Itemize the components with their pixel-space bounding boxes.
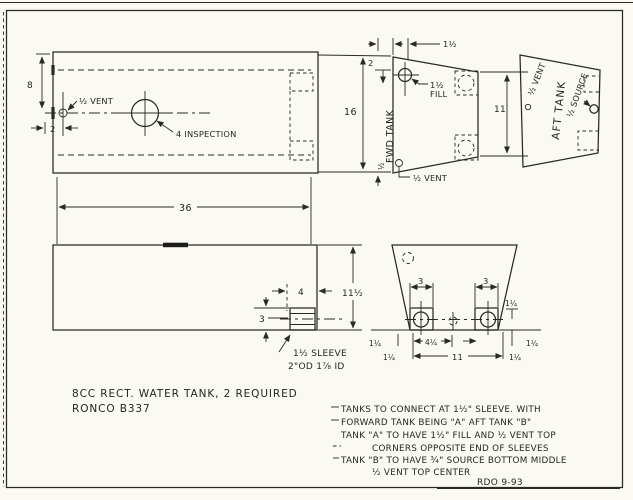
plan-vent-offset-dim: 2: [50, 124, 55, 134]
fwd-vent-label: ½ VENT: [413, 173, 448, 183]
fwd-right-height-dim: 11: [494, 105, 506, 115]
note-line-3: TANK "A" TO HAVE 1½" FILL AND ½ VENT TOP: [340, 431, 556, 441]
weld-mark: [163, 243, 188, 248]
fwd-vent-hole-symbol: [396, 160, 403, 167]
end-width-dim: 11: [452, 352, 463, 362]
drawing-sheet: 8 ½ VENT 2 4 INSPECTION 36 16 1½: [0, 0, 633, 500]
drawing-title: 8CC RECT. WATER TANK, 2 REQUIRED: [72, 388, 298, 400]
port-sleeve-dim: 3: [418, 276, 423, 286]
side-height-dim: 11½: [342, 289, 363, 299]
side-view: 4 3 11½ 1½ SLEEVE 2"OD 1⅞ ID: [53, 243, 363, 372]
aft-tank-view: ½ VENT AFT TANK ½ SOURCE: [520, 55, 600, 167]
end-view: 3 3 1¼ 1¼ 4¼ 1¼ 1¼ 11 1¼: [369, 245, 541, 362]
sleeve-callout-line1: 1½ SLEEVE: [293, 349, 347, 359]
sleeve-callout-line2: 2"OD 1⅞ ID: [288, 362, 345, 372]
plan-length-dim: 36: [179, 203, 192, 214]
corner-dim-b: 1¼: [526, 339, 539, 348]
stbd-sleeve-dim: 3: [483, 276, 488, 286]
fwd-left-height-dim: 16: [344, 107, 357, 118]
sleeve-inset-dim: 4: [298, 288, 304, 298]
sleeve-height-dim: 3: [259, 315, 265, 325]
aft-source-label: ½ SOURCE: [564, 72, 589, 119]
note-line-6: ½ VENT TOP CENTER: [372, 468, 470, 478]
circle-height-dim: 1¼: [505, 299, 518, 308]
title-block: 8CC RECT. WATER TANK, 2 REQUIRED RONCO B…: [72, 388, 298, 415]
aft-vent-label: ½ VENT: [526, 61, 548, 97]
fwd-height-dimension: 16: [318, 55, 391, 172]
fwd-tank-view: 1½ 2 1½ FILL FWD TANK ½ ½ VENT: [368, 38, 478, 186]
source-fitting-symbol: [590, 105, 598, 113]
plan-vent-label: ½ VENT: [79, 96, 114, 106]
aft-vent-hole-symbol: [525, 104, 530, 109]
tank-drawing-canvas: 8 ½ VENT 2 4 INSPECTION 36 16 1½: [0, 0, 633, 500]
fwd-fill-from-top-dim: 2: [368, 58, 373, 68]
fwd-tank-name: FWD TANK: [385, 109, 396, 163]
plan-inspection-label: 4 INSPECTION: [176, 129, 237, 139]
plan-height-dim: 8: [27, 81, 33, 91]
note-line-2: FORWARD TANK BEING "A" AFT TANK "B": [341, 418, 531, 428]
note-line-4: CORNERS OPPOSITE END OF SLEEVES: [372, 444, 549, 454]
center-dim: 4¼: [425, 338, 438, 347]
drawing-subtitle: RONCO B337: [72, 403, 151, 415]
note-line-1: TANKS TO CONNECT AT 1½" SLEEVE. WITH: [340, 405, 541, 415]
signature: RDO 9-93: [477, 478, 523, 488]
note-line-5: TANK "B" TO HAVE ¾" SOURCE BOTTOM MIDDLE: [340, 456, 567, 466]
fwd-vent-offset-dim: ½: [377, 163, 386, 170]
notes-block: TANKS TO CONNECT AT 1½" SLEEVE. WITH FOR…: [331, 405, 620, 489]
fill-label-word: FILL: [430, 89, 447, 99]
corner-dim-c: 1¼: [383, 353, 396, 362]
corner-dim-a: 1¼: [369, 339, 382, 348]
corner-dim-d: 1¼: [509, 353, 522, 362]
plan-view: 8 ½ VENT 2 4 INSPECTION 36: [27, 52, 318, 244]
fwd-top-offset-dim: 1½: [443, 39, 457, 49]
